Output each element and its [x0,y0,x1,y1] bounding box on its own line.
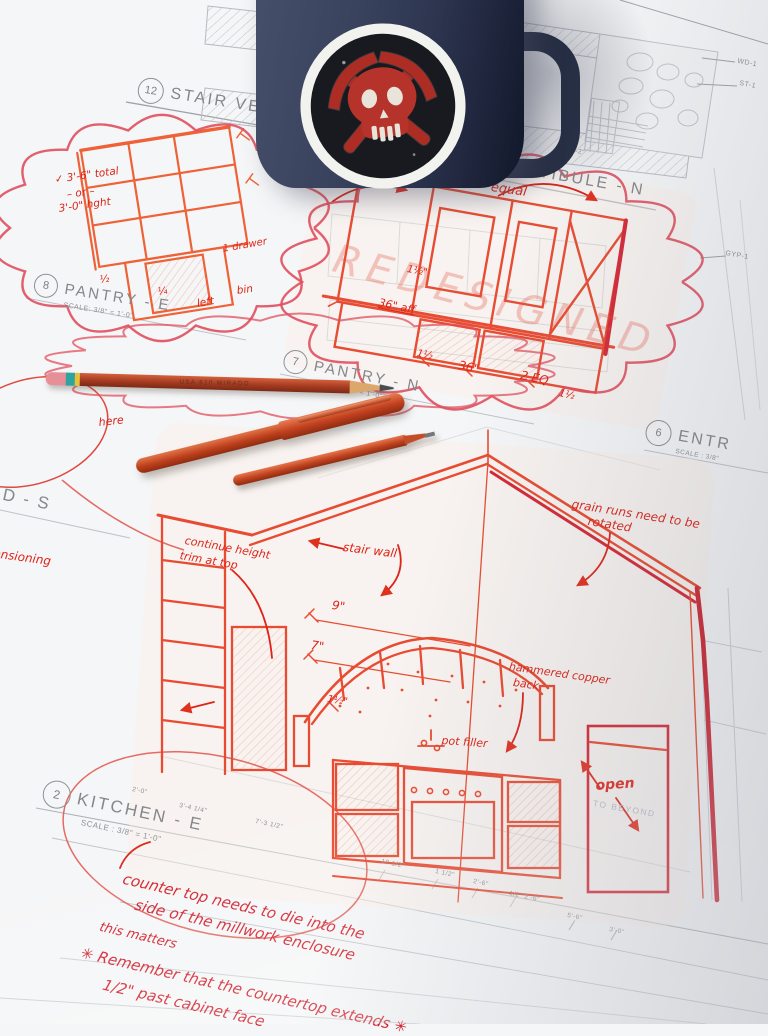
pencil-imprint: USA 610 MIRADO [179,379,249,387]
trace-paper-kitchen [124,421,715,929]
pen-metal-tip [424,432,435,438]
note-this-matters: this matters [97,920,178,952]
note-dimensioning: dimensioning [0,543,52,568]
coffee-mug [256,0,550,188]
note-left: left [196,295,215,310]
detail-number-7: 7 [281,348,309,376]
pencil-eraser [46,372,66,386]
note-quarter-e: ¼ [157,286,168,298]
dim-red-7: 7" [310,638,325,654]
detail-number-8: 8 [32,272,59,299]
note-3-0-hght: 3'-0" hght [58,196,111,215]
note-bin: bin [236,283,254,297]
dim-3-0: 3'-0" [609,926,626,936]
note-here: here [98,413,124,429]
note-open: open [595,775,635,794]
pencil-graphite-tip [380,384,394,391]
mug-body [256,0,524,188]
detail-number-6: 6 [643,418,673,448]
photo-drafting-desk: { "titles": { "v12": {"n":"12","t":"STAI… [0,0,768,1024]
label-wd1: WD-1 [737,58,758,68]
note-half-e: ½ [99,274,110,286]
note-1-drawer: 1 drawer [222,236,268,255]
label-st1: ST-1 [739,80,757,90]
note-3-6-total: ✓ 3'-6" total [54,165,119,186]
label-gyp1: GYP-1 [725,250,749,261]
detail-number-12: 12 [136,76,166,106]
pencil-wood-tip [350,380,384,394]
title-d-s: D - S [1,485,53,515]
dim-red-9: 9" [331,598,346,614]
detail-number-2: 2 [40,778,73,811]
pencil-ferrule [66,373,75,386]
